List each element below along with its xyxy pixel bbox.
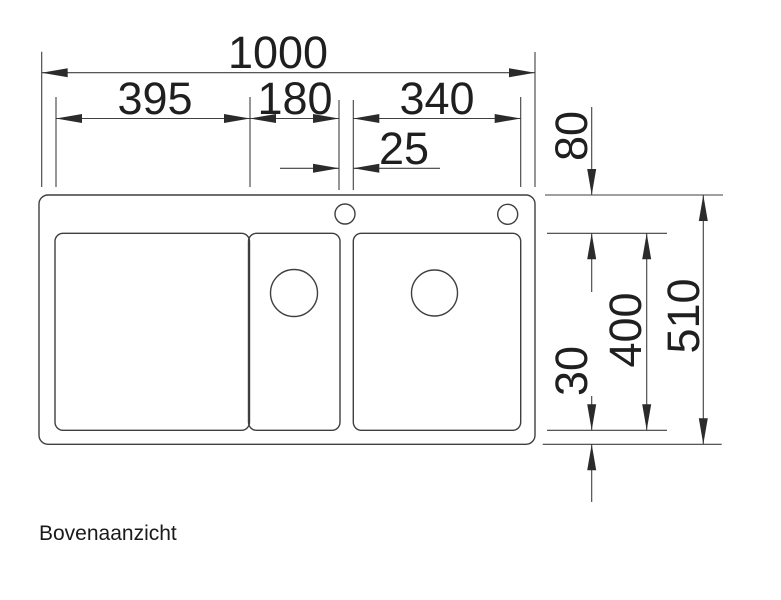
arrowhead-left <box>56 114 82 123</box>
arrowhead-down <box>699 418 708 444</box>
dim-label-total-depth: 510 <box>658 278 709 353</box>
dim-label-left-section: 395 <box>117 73 192 124</box>
view-caption: Bovenaanzicht <box>39 522 177 545</box>
arrowhead-left <box>313 164 339 173</box>
dim-label-middle-bowl: 180 <box>257 73 332 124</box>
arrowhead-down <box>587 169 596 195</box>
arrowhead-up <box>587 233 596 259</box>
dim-left-and-middle-width: 395 180 <box>56 73 339 124</box>
arrowhead-right <box>495 114 521 123</box>
tap-hole-center <box>335 204 355 224</box>
sink-outer-edge <box>39 195 535 444</box>
arrowhead-down <box>642 404 651 430</box>
dim-top-rim: 80 <box>546 107 597 292</box>
dim-total-depth: 510 <box>658 195 709 444</box>
arrowhead-right <box>353 164 379 173</box>
dim-label-bowl-gap: 25 <box>379 123 429 174</box>
arrowhead-right <box>509 68 535 77</box>
right-bowl-drain-hole <box>412 270 458 316</box>
dim-total-width: 1000 <box>42 27 535 78</box>
dim-label-total-width: 1000 <box>228 27 328 78</box>
arrowhead-left <box>353 114 379 123</box>
sink-top-view-drawing: 1000 395 180 340 25 80 400 <box>0 0 781 600</box>
right-bowl <box>353 233 520 430</box>
arrowhead-up <box>699 195 708 221</box>
drainer-section <box>55 233 250 430</box>
dim-label-right-bowl: 340 <box>399 73 474 124</box>
tap-hole-right <box>498 204 518 224</box>
sink-technical-drawing-page: 1000 395 180 340 25 80 400 <box>0 0 781 600</box>
dim-bowl-depth: 400 <box>600 233 651 430</box>
middle-bowl-drain-hole <box>271 270 318 317</box>
dim-bowl-gap: 25 <box>280 123 440 174</box>
arrowhead-up <box>642 233 651 259</box>
dim-label-bowl-depth: 400 <box>600 292 651 367</box>
arrowhead-down <box>587 404 596 430</box>
dim-bottom-rim: 30 <box>546 346 597 502</box>
middle-bowl <box>249 233 341 430</box>
arrowhead-divider-left <box>224 114 250 123</box>
dim-label-top-rim: 80 <box>546 111 597 161</box>
sink-outline-group <box>39 195 535 444</box>
dim-label-bottom-rim: 30 <box>546 346 597 396</box>
arrowhead-left <box>42 68 68 77</box>
arrowhead-up <box>587 444 596 470</box>
dim-right-bowl-width: 340 <box>353 73 520 124</box>
